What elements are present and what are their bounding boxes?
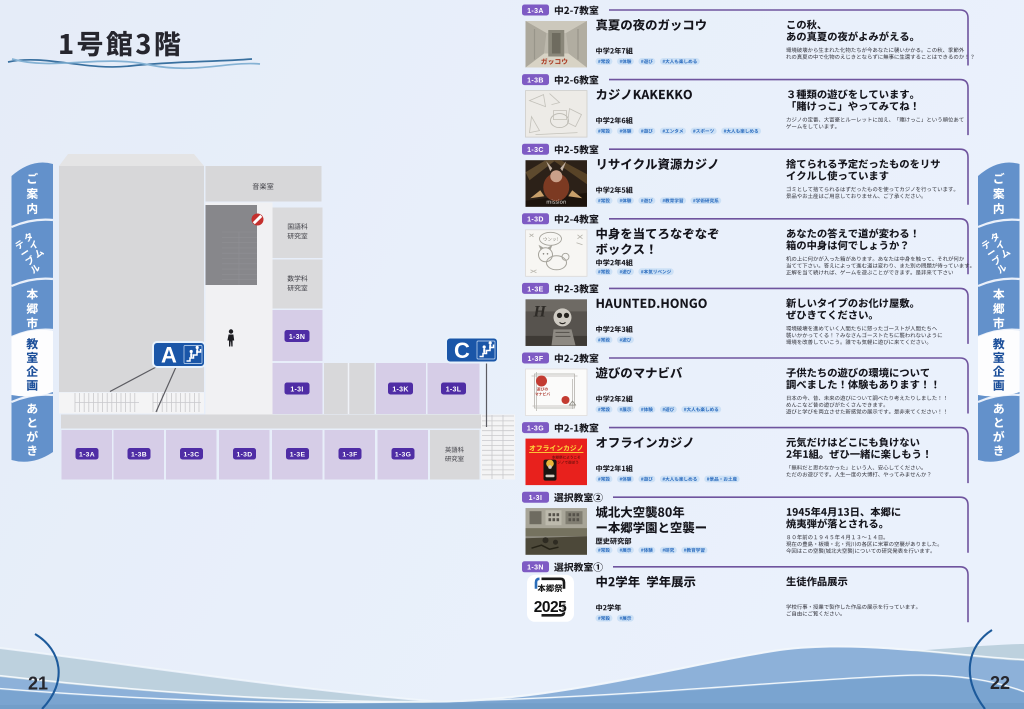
svg-text:1-3I: 1-3I: [529, 495, 543, 502]
svg-text:C: C: [454, 338, 470, 363]
svg-text:2025: 2025: [534, 599, 567, 616]
svg-text:1-3N: 1-3N: [527, 565, 544, 572]
svg-text:1-3B: 1-3B: [131, 452, 147, 459]
svg-text:1-3F: 1-3F: [342, 452, 357, 459]
svg-text:1-3F: 1-3F: [528, 356, 544, 363]
svg-text:1-3B: 1-3B: [527, 78, 544, 85]
svg-text:1-3G: 1-3G: [527, 426, 544, 433]
svg-text:1-3I: 1-3I: [290, 387, 303, 394]
svg-text:1-3E: 1-3E: [290, 452, 306, 459]
svg-text:1-3K: 1-3K: [392, 387, 408, 394]
svg-text:1-3L: 1-3L: [446, 387, 462, 394]
svg-text:A: A: [161, 343, 177, 368]
svg-text:1-3A: 1-3A: [527, 8, 544, 15]
svg-text:H: H: [533, 303, 547, 320]
svg-text:1-3D: 1-3D: [527, 217, 544, 224]
svg-text:1-3G: 1-3G: [395, 452, 411, 459]
svg-text:1-3A: 1-3A: [79, 452, 95, 459]
svg-text:1-3C: 1-3C: [527, 147, 544, 154]
svg-text:22: 22: [990, 673, 1010, 693]
svg-text:1-3D: 1-3D: [237, 452, 253, 459]
svg-text:1-3N: 1-3N: [289, 334, 305, 341]
svg-text:1-3C: 1-3C: [184, 452, 200, 459]
svg-text:1-3E: 1-3E: [527, 286, 543, 293]
svg-text:21: 21: [28, 674, 48, 694]
